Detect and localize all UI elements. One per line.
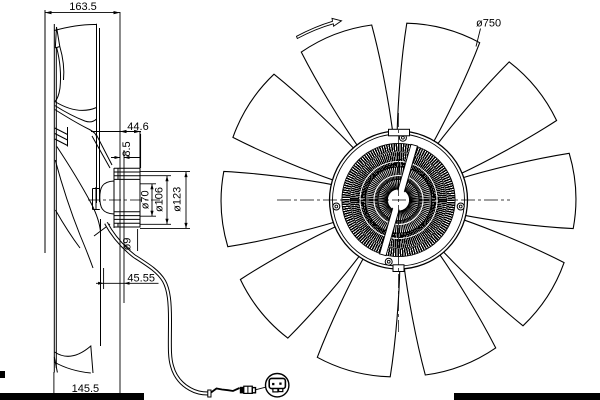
svg-text:ø106: ø106 [153,187,165,212]
svg-text:8.5: 8.5 [121,141,133,156]
svg-text:163.5: 163.5 [69,1,97,13]
svg-text:45.55: 45.55 [127,273,155,285]
svg-text:ø123: ø123 [172,187,184,212]
svg-text:ø750: ø750 [476,18,501,30]
svg-text:ø9: ø9 [122,238,134,251]
svg-text:44.6: 44.6 [127,121,148,133]
